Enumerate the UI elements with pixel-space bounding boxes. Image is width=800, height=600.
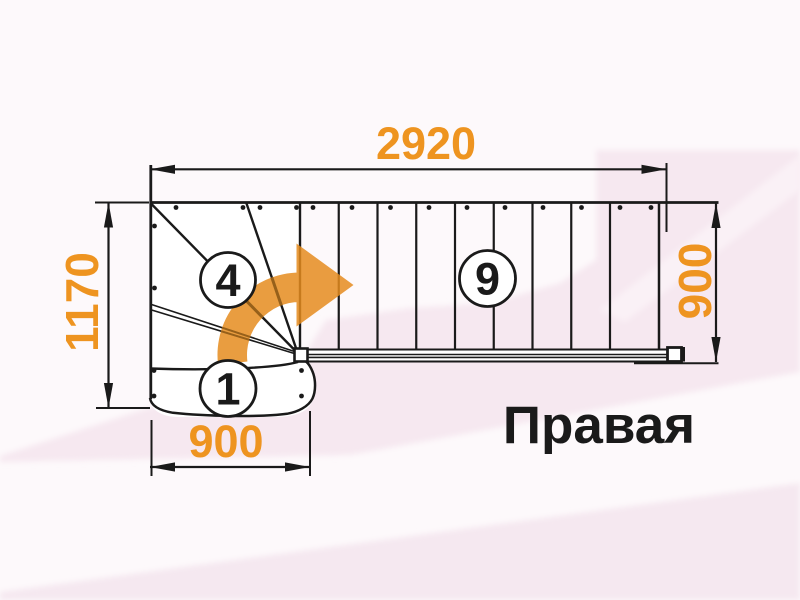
svg-text:900: 900 bbox=[188, 416, 263, 467]
svg-text:1: 1 bbox=[215, 364, 240, 415]
svg-text:4: 4 bbox=[215, 255, 240, 306]
svg-text:Правая: Правая bbox=[503, 396, 695, 455]
svg-text:1170: 1170 bbox=[56, 252, 108, 352]
svg-text:2920: 2920 bbox=[376, 118, 476, 169]
svg-text:900: 900 bbox=[669, 243, 721, 320]
svg-text:9: 9 bbox=[475, 254, 500, 305]
